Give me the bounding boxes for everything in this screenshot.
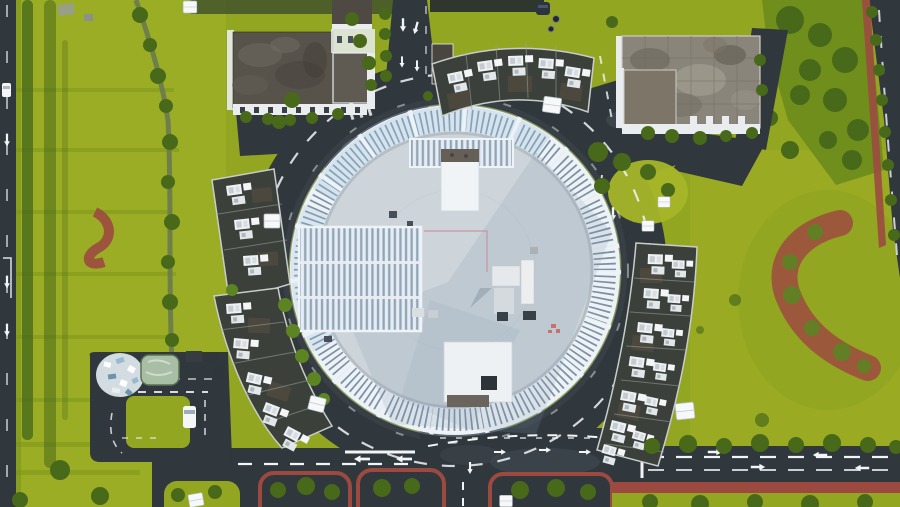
white-van bbox=[183, 406, 201, 428]
aerial-photo-canvas bbox=[0, 0, 900, 507]
paved-patch bbox=[57, 3, 74, 16]
hedge-row-west-2 bbox=[44, 0, 56, 468]
well-cover bbox=[548, 26, 554, 32]
white-canopy bbox=[500, 495, 513, 506]
ribbed-annex-roof bbox=[299, 227, 421, 331]
south-exit-road bbox=[444, 465, 486, 507]
shed-small bbox=[206, 352, 218, 362]
hedge-row-west-1 bbox=[22, 0, 33, 440]
north-roof-annex bbox=[441, 149, 479, 211]
pond bbox=[141, 355, 179, 385]
paved-patch-small bbox=[84, 14, 93, 21]
dark-vehicle bbox=[215, 366, 224, 380]
white-canopy bbox=[642, 221, 654, 232]
aerial-photo bbox=[0, 0, 900, 507]
red-footpath-south bbox=[612, 482, 900, 493]
dark-car bbox=[536, 2, 550, 15]
white-canopy bbox=[264, 214, 280, 228]
northeast-building-annex bbox=[624, 70, 676, 126]
shed bbox=[186, 351, 202, 362]
dark-court-top bbox=[430, 0, 544, 12]
tree-band-top bbox=[186, 0, 412, 14]
white-canopy bbox=[183, 1, 197, 13]
practice-area-infield bbox=[126, 396, 190, 448]
northeast-building bbox=[616, 36, 760, 134]
white-canopy bbox=[188, 493, 204, 507]
white-canopy bbox=[542, 96, 562, 114]
white-canopy bbox=[675, 402, 695, 420]
well-cover bbox=[553, 16, 560, 23]
white-canopy bbox=[658, 197, 670, 208]
white-car bbox=[2, 83, 11, 97]
south-roof-annex bbox=[444, 342, 512, 407]
